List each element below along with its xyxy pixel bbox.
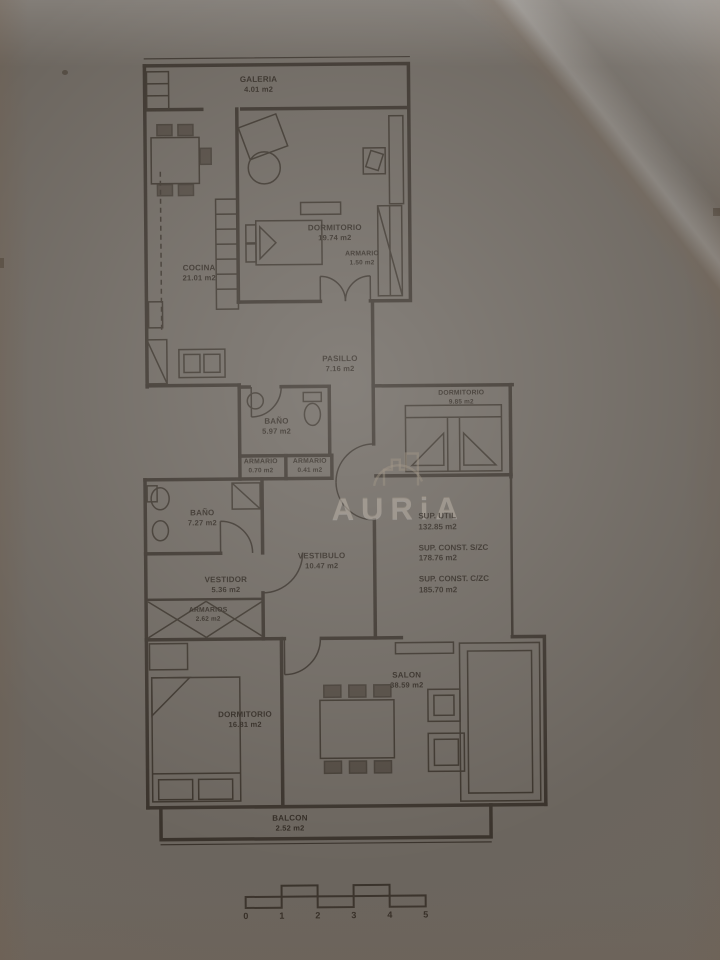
room-area: 5.36 m2	[205, 585, 248, 595]
room-area: 0.41 m2	[293, 467, 327, 476]
room-area: 38.59 m2	[390, 681, 423, 691]
surface-total: SUP. CONST. C/ZC 185.70 m2	[419, 574, 489, 596]
scale-tick-0: 0	[243, 911, 248, 921]
surface-const-label: SUP. CONST. S/ZC	[419, 542, 489, 553]
auria-logo-icon	[368, 443, 428, 488]
room-area: 16.81 m2	[218, 720, 272, 730]
surface-util: SUP. UTIL 132.85 m2	[418, 511, 488, 533]
paper-speck	[62, 70, 68, 75]
room-name: BALCON	[272, 813, 307, 822]
scale-tick-1: 1	[279, 911, 284, 921]
room-label-vestidor: VESTIDOR 5.36 m2	[205, 575, 248, 596]
room-name: DORMITORIO	[218, 710, 272, 719]
scale-bar	[246, 884, 426, 908]
room-area: 0.70 m2	[244, 467, 278, 476]
room-name: DORMITORIO	[438, 389, 484, 396]
scale-tick-4: 4	[387, 910, 392, 920]
room-name: ARMARIOS	[189, 607, 228, 614]
room-label-armario-2: ARMARIO 0.70 m2	[244, 458, 278, 475]
room-area: 5.97 m2	[262, 427, 291, 437]
room-label-balcon: BALCON 2.52 m2	[272, 813, 308, 833]
furniture	[143, 68, 540, 803]
room-label-armario-3: ARMARIO 0.41 m2	[293, 458, 327, 475]
room-name: ARMARIO	[345, 250, 379, 257]
room-label-bano-1: BAÑO 5.97 m2	[262, 417, 291, 437]
room-label-armario-1: ARMARIO 1.50 m2	[345, 250, 379, 267]
room-label-armarios: ARMARIOS 2.62 m2	[189, 607, 228, 624]
room-area: 7.16 m2	[322, 364, 358, 374]
room-area: 21.01 m2	[183, 274, 216, 284]
surface-const-value: 178.76 m2	[419, 553, 489, 564]
room-label-pasillo: PASILLO 7.16 m2	[322, 354, 358, 374]
floor-plan: AURiA GALERIA 4.01 m2 COCINA 21.01 m2 DO…	[0, 0, 720, 960]
room-area: 2.52 m2	[272, 824, 308, 834]
scale-tick-3: 3	[351, 910, 356, 920]
scale-tick-2: 2	[315, 910, 320, 920]
room-area: 10.47 m2	[298, 561, 346, 571]
room-name: COCINA	[183, 263, 216, 272]
room-area: 7.27 m2	[188, 519, 217, 529]
surface-const: SUP. CONST. S/ZC 178.76 m2	[419, 542, 489, 564]
room-name: GALERIA	[240, 75, 277, 84]
room-name: SALON	[392, 670, 421, 679]
surface-util-value: 132.85 m2	[418, 522, 488, 533]
floor-plan-photo: AURiA GALERIA 4.01 m2 COCINA 21.01 m2 DO…	[0, 0, 720, 960]
room-label-bano-2: BAÑO 7.27 m2	[188, 508, 217, 528]
room-name: ARMARIO	[244, 458, 278, 465]
room-area: 9.85 m2	[438, 398, 484, 407]
room-area: 4.01 m2	[240, 85, 277, 95]
room-label-dormitorio-1: DORMITORIO 19.74 m2	[308, 223, 362, 244]
room-name: PASILLO	[322, 354, 358, 363]
paper-speck	[0, 258, 4, 268]
room-name: DORMITORIO	[308, 223, 362, 232]
surface-total-value: 185.70 m2	[419, 585, 489, 596]
surface-summary: SUP. UTIL 132.85 m2 SUP. CONST. S/ZC 178…	[418, 511, 489, 606]
room-name: BAÑO	[190, 508, 214, 517]
room-name: VESTIBULO	[298, 551, 346, 560]
surface-total-label: SUP. CONST. C/ZC	[419, 574, 489, 585]
room-label-galeria: GALERIA 4.01 m2	[240, 75, 278, 95]
room-area: 2.62 m2	[189, 615, 228, 624]
surface-util-label: SUP. UTIL	[418, 511, 488, 522]
room-area: 19.74 m2	[308, 233, 362, 243]
scale-tick-5: 5	[423, 909, 428, 919]
room-label-vestibulo: VESTIBULO 10.47 m2	[298, 551, 346, 572]
room-label-dormitorio-2: DORMITORIO 9.85 m2	[438, 389, 484, 407]
room-label-cocina: COCINA 21.01 m2	[182, 263, 215, 283]
room-name: VESTIDOR	[205, 575, 248, 584]
room-area: 1.50 m2	[345, 259, 379, 268]
paper-speck	[713, 208, 720, 216]
room-label-salon: SALON 38.59 m2	[390, 670, 423, 690]
room-label-dormitorio-3: DORMITORIO 16.81 m2	[218, 710, 272, 731]
room-name: ARMARIO	[293, 458, 327, 465]
room-name: BAÑO	[264, 417, 288, 426]
